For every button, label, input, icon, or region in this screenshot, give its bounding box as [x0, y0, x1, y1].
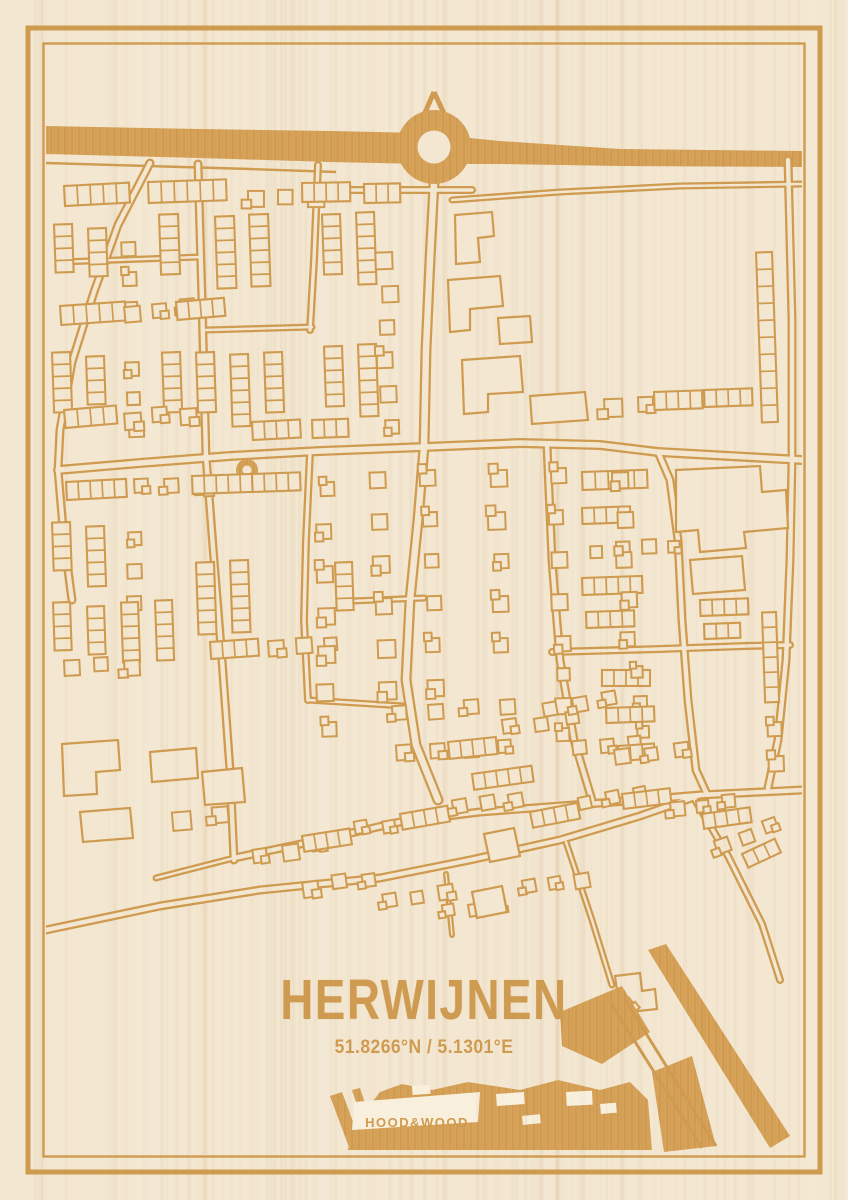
- city-title: HERWIJNEN: [85, 972, 763, 1028]
- brand-logo: HOOD&WOOD: [342, 1115, 492, 1131]
- wooden-map-poster: HERWIJNEN 51.8266°N / 5.1301°E HOOD&WOOD: [0, 0, 848, 1200]
- coordinates-label: 51.8266°N / 5.1301°E: [34, 1038, 814, 1060]
